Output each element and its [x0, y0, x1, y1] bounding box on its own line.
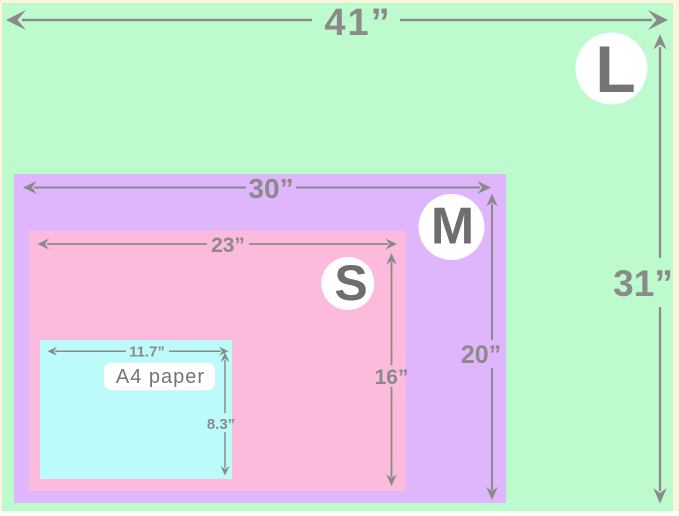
svg-text:S: S: [334, 255, 367, 311]
svg-text:16”: 16”: [375, 366, 409, 389]
svg-text:M: M: [431, 198, 474, 256]
svg-text:11.7”: 11.7”: [129, 344, 165, 361]
svg-text:8.3”: 8.3”: [207, 416, 235, 433]
svg-text:L: L: [595, 32, 635, 106]
svg-text:A4 paper: A4 paper: [116, 366, 205, 388]
svg-text:31”: 31”: [613, 263, 673, 304]
svg-text:30”: 30”: [248, 173, 293, 204]
svg-text:41”: 41”: [324, 2, 391, 44]
svg-text:20”: 20”: [461, 341, 501, 369]
svg-text:23”: 23”: [211, 234, 245, 257]
